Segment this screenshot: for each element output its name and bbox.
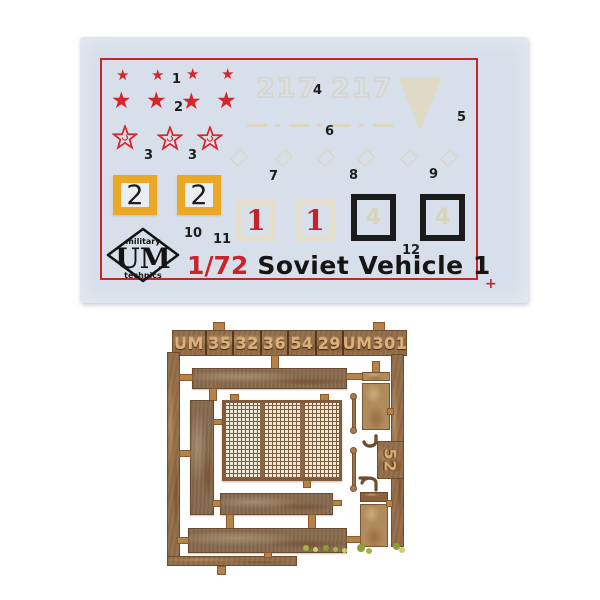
sprue-stub [179, 450, 191, 457]
banner-segment: 36 [262, 331, 289, 355]
sprue-pad [350, 427, 357, 434]
green-speck [323, 545, 329, 551]
photo-etch-fret: UM 35 32 36 54 29 UM301 52 [0, 0, 600, 600]
banner-segment: 29 [317, 331, 344, 355]
etched-plank-top [192, 368, 347, 389]
fret-side-code: 52 [381, 448, 400, 472]
etched-plank-middle [220, 493, 333, 515]
sprue-rod [352, 396, 356, 430]
green-speck [366, 548, 372, 554]
fret-side-code-block: 52 [377, 441, 404, 479]
sprue-pad [350, 393, 357, 400]
etched-bracket-bottom-right [360, 504, 388, 547]
etched-bracket-cap [360, 492, 388, 502]
sprue-stub [226, 514, 234, 529]
mesh-panel [225, 403, 260, 478]
sprue-stub [346, 536, 361, 543]
sprue-stub [332, 500, 342, 506]
fret-left-rail [167, 352, 180, 564]
sprue-stub [177, 537, 189, 544]
green-speck [303, 545, 309, 551]
etched-plank-left [190, 400, 214, 515]
sprue-stub [271, 355, 279, 369]
green-speck [333, 547, 338, 552]
green-speck [399, 547, 405, 553]
green-speck [313, 547, 318, 552]
fret-bottom-rail [167, 556, 297, 566]
green-speck [342, 548, 347, 553]
sprue-stub [386, 500, 393, 507]
sprue-stub [303, 480, 311, 488]
banner-segment: 32 [234, 331, 261, 355]
sprue-tab [217, 566, 226, 575]
etched-hook-part [361, 434, 379, 451]
banner-segment: 35 [207, 331, 234, 355]
sprue-stub [212, 500, 221, 507]
banner-segment: UM301 [344, 331, 406, 355]
etched-bracket-cap [362, 372, 390, 381]
etched-mesh-grille [222, 400, 342, 481]
banner-segment: 54 [289, 331, 316, 355]
mesh-panel [304, 403, 339, 478]
green-speck [357, 544, 365, 552]
sprue-stub [387, 408, 394, 415]
sprue-pad [350, 447, 357, 454]
mesh-panel [264, 403, 299, 478]
etched-hook-part [357, 475, 379, 493]
sprue-pad [350, 485, 357, 492]
sprue-rod [352, 450, 356, 488]
fret-id-banner: UM 35 32 36 54 29 UM301 [172, 330, 407, 356]
sprue-stub [346, 373, 363, 380]
sprue-stub [264, 552, 272, 558]
etched-bracket-top-right [362, 383, 390, 430]
sprue-stub [308, 514, 316, 529]
sprue-stub [179, 374, 193, 381]
